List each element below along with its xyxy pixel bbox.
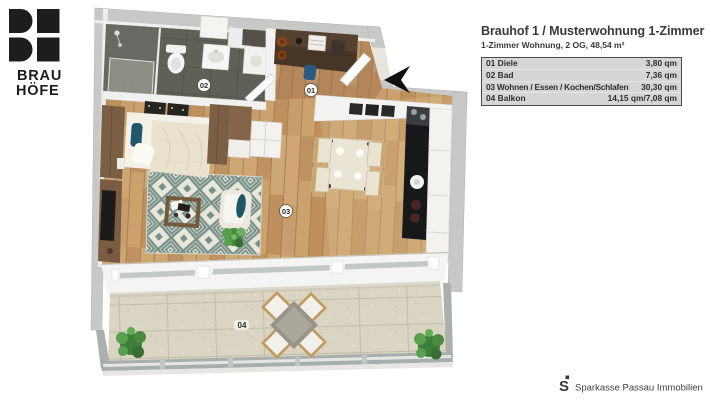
svg-text:03: 03 xyxy=(282,207,290,216)
svg-text:04: 04 xyxy=(238,321,247,330)
svg-text:02: 02 xyxy=(200,81,208,90)
svg-text:01: 01 xyxy=(307,86,315,95)
